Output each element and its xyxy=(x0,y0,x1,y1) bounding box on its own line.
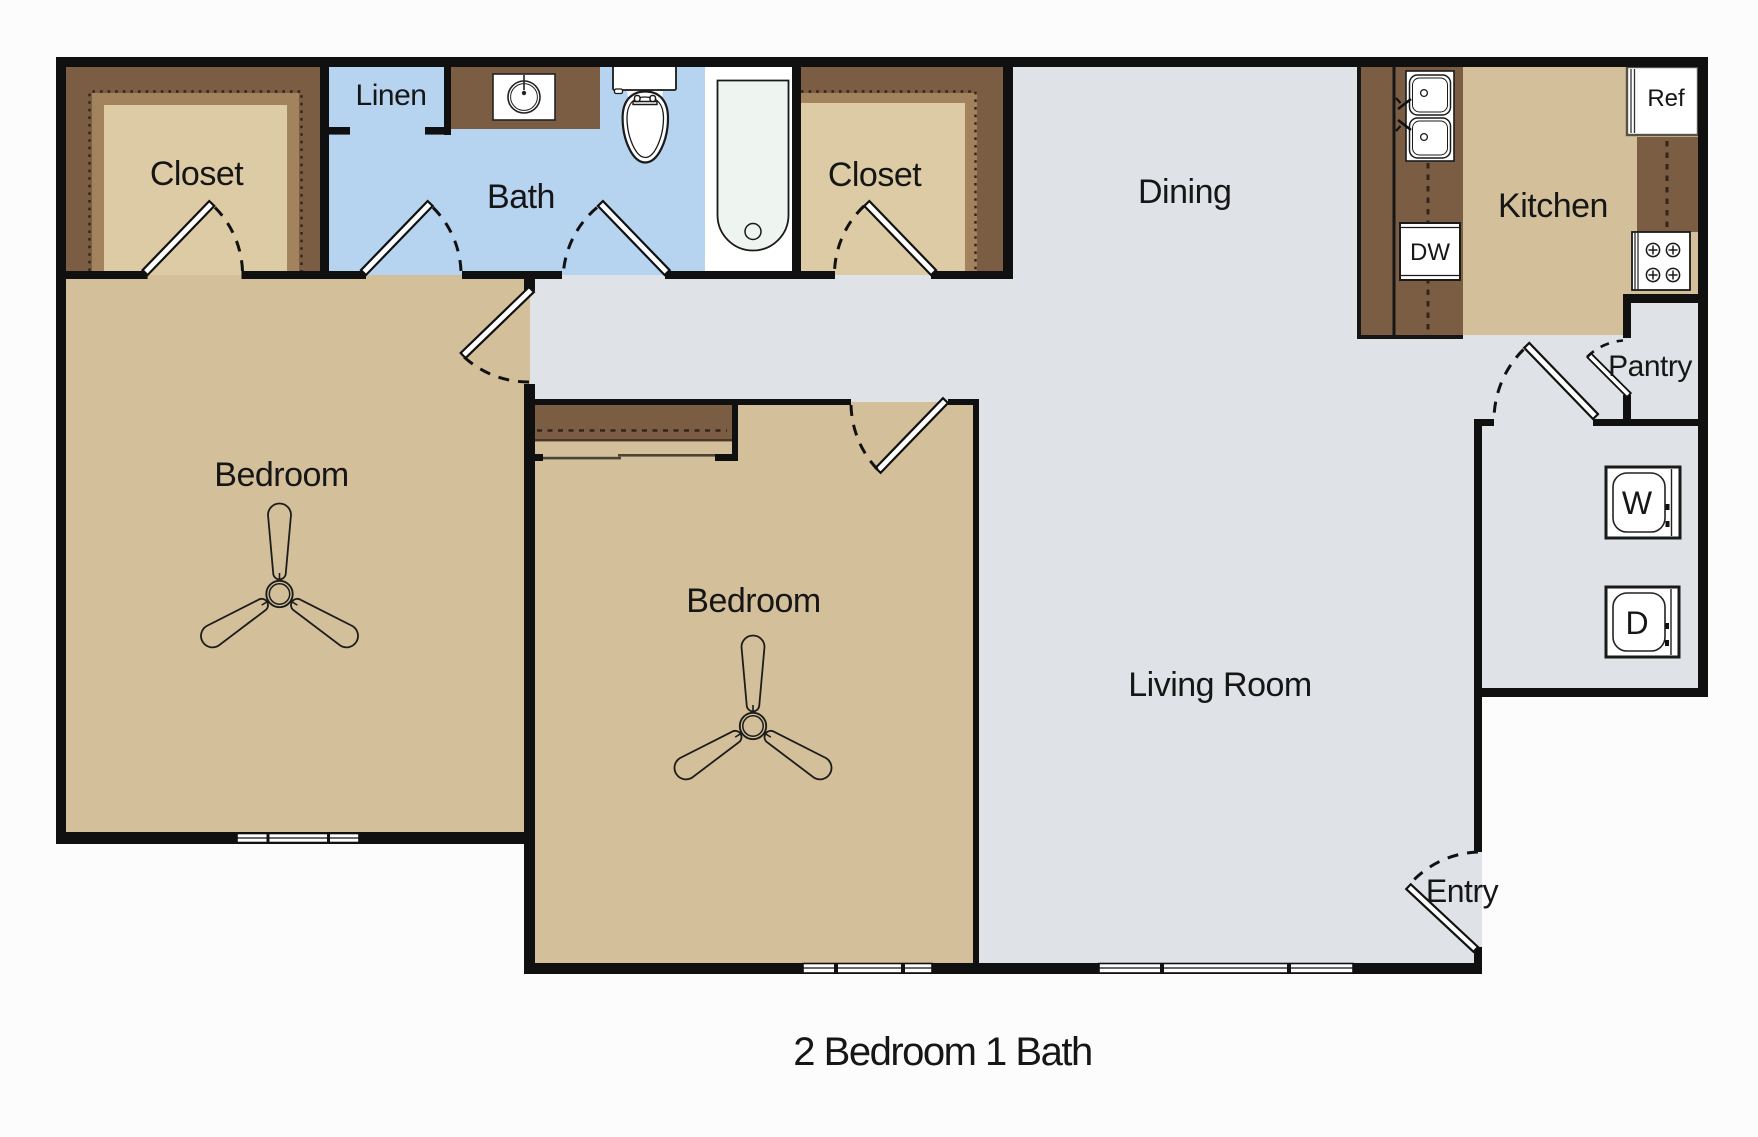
svg-text:W: W xyxy=(1622,485,1653,521)
svg-text:DW: DW xyxy=(1410,239,1450,266)
svg-text:Ref: Ref xyxy=(1647,85,1685,112)
svg-text:Bedroom: Bedroom xyxy=(214,456,348,494)
svg-text:Closet: Closet xyxy=(828,156,922,194)
svg-text:Entry: Entry xyxy=(1426,873,1499,909)
svg-text:Kitchen: Kitchen xyxy=(1498,187,1608,225)
svg-text:D: D xyxy=(1625,605,1648,641)
svg-text:Dining: Dining xyxy=(1138,173,1231,211)
svg-text:Bedroom: Bedroom xyxy=(686,582,820,620)
svg-text:Linen: Linen xyxy=(356,79,427,112)
svg-text:2 Bedroom 1 Bath: 2 Bedroom 1 Bath xyxy=(793,1030,1091,1074)
svg-text:Pantry: Pantry xyxy=(1608,350,1692,383)
svg-text:Closet: Closet xyxy=(150,155,244,193)
svg-text:Bath: Bath xyxy=(487,178,555,216)
svg-text:Living Room: Living Room xyxy=(1128,666,1311,704)
